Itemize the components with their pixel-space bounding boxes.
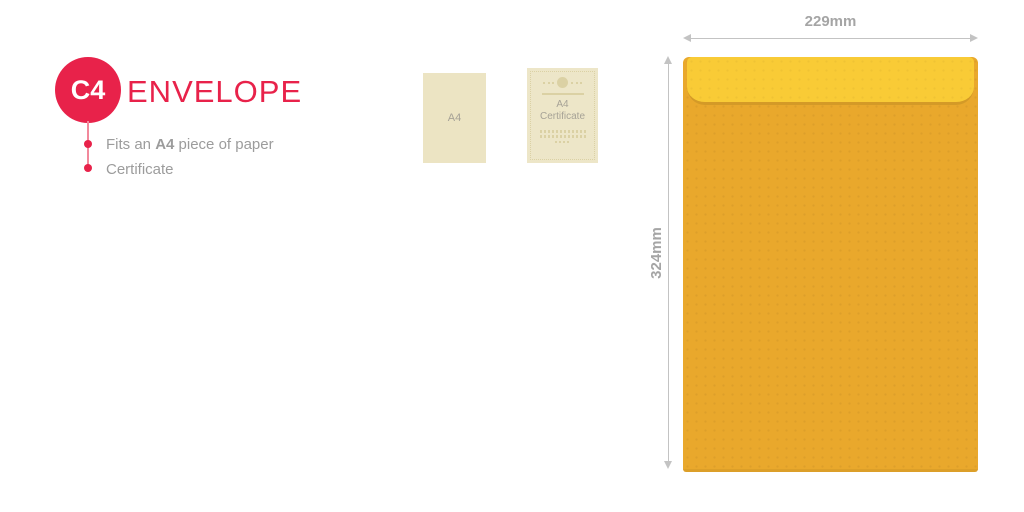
certificate-divider	[542, 93, 584, 95]
arrowhead-down-icon	[664, 461, 672, 469]
feature-text-prefix: Fits an	[106, 136, 155, 153]
format-badge-label: C4	[71, 75, 106, 106]
c4-envelope-infographic: C4 ENVELOPE Fits an A4 piece of paper Ce…	[0, 0, 1024, 512]
seal-icon	[557, 77, 568, 88]
feature-text-bold: A4	[155, 136, 174, 153]
certificate-text-squiggle	[540, 130, 586, 133]
a4-sheet-illustration: A4	[423, 73, 486, 163]
certificate-signature-squiggle	[555, 141, 571, 143]
bullet-dot-icon	[84, 164, 92, 172]
seal-dash-icon	[543, 82, 554, 84]
width-dimension-label: 229mm	[683, 13, 978, 30]
height-dimension-label: 324mm	[648, 213, 664, 293]
feature-item-certificate: Certificate	[106, 161, 174, 178]
seal-dash-icon	[571, 82, 582, 84]
arrowhead-up-icon	[664, 56, 672, 64]
width-dimension-line	[690, 38, 971, 39]
page-title: ENVELOPE	[127, 74, 302, 110]
feature-item-fits-a4: Fits an A4 piece of paper	[106, 136, 274, 153]
feature-text-suffix: Certificate	[106, 161, 174, 178]
certificate-seal-row	[543, 77, 582, 88]
format-badge: C4	[55, 57, 121, 123]
a4-sheet-label: A4	[448, 112, 461, 124]
certificate-content: A4 Certificate	[527, 68, 598, 163]
bullet-dot-icon	[84, 140, 92, 148]
arrowhead-left-icon	[683, 34, 691, 42]
envelope-flap	[687, 57, 974, 105]
certificate-label-line1: A4	[556, 99, 568, 111]
height-dimension-line	[668, 63, 669, 462]
envelope-illustration	[683, 57, 978, 472]
certificate-label-line2: Certificate	[540, 111, 585, 123]
arrowhead-right-icon	[970, 34, 978, 42]
feature-text-suffix: piece of paper	[174, 136, 273, 153]
certificate-illustration: A4 Certificate	[527, 68, 598, 163]
certificate-text-squiggle	[540, 135, 586, 138]
